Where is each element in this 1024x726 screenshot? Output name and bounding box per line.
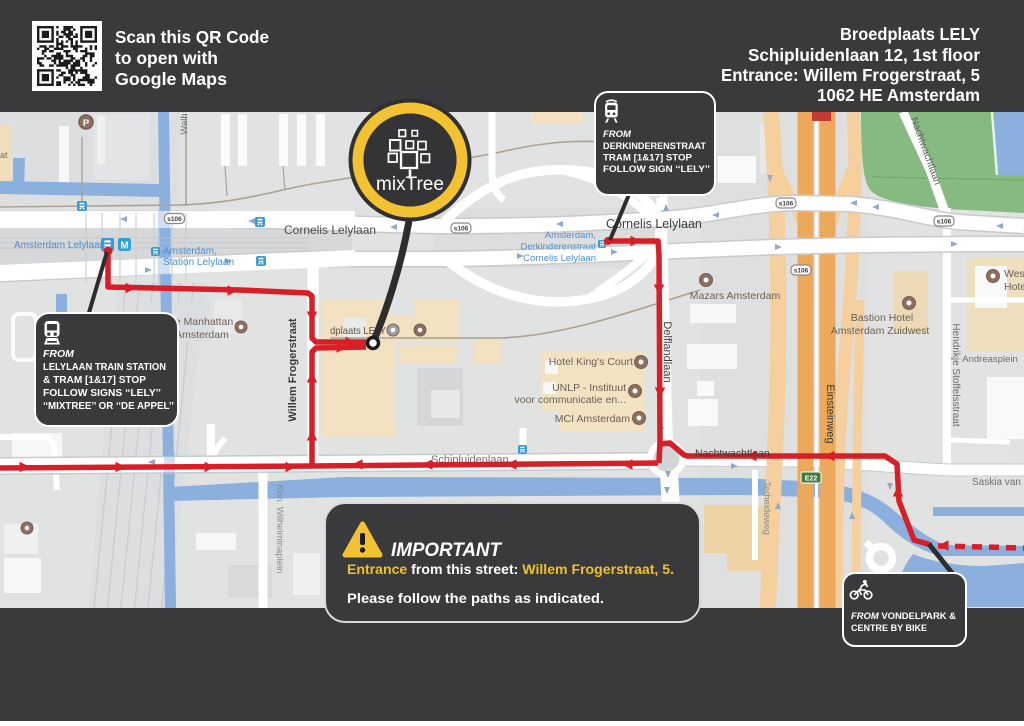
svg-text:TRAM [1&17] STOP: TRAM [1&17] STOP bbox=[603, 153, 693, 164]
svg-text:e Manhattan: e Manhattan bbox=[175, 316, 234, 328]
svg-text:s106: s106 bbox=[779, 201, 794, 208]
svg-text:WestCo: WestCo bbox=[1004, 268, 1024, 280]
svg-text:MCI Amsterdam: MCI Amsterdam bbox=[555, 413, 631, 425]
svg-text:voor communicatie en...: voor communicatie en... bbox=[515, 394, 626, 406]
svg-text:IMPORTANT: IMPORTANT bbox=[391, 540, 502, 561]
svg-text:Derkinderenstraat: Derkinderenstraat bbox=[520, 242, 596, 253]
svg-text:FOLLOW SIGNS ‘‘LELY’’: FOLLOW SIGNS ‘‘LELY’’ bbox=[43, 388, 161, 399]
svg-text:FROM: FROM bbox=[43, 348, 74, 360]
svg-text:Walh: Walh bbox=[179, 113, 190, 134]
svg-text:Terheideweg: Terheideweg bbox=[761, 481, 772, 535]
svg-text:Nachtwachtlaan: Nachtwachtlaan bbox=[695, 448, 770, 460]
svg-text:Einsteinweg: Einsteinweg bbox=[824, 384, 836, 443]
svg-text:Amsterdam Zuidwest: Amsterdam Zuidwest bbox=[831, 325, 930, 337]
svg-text:E22: E22 bbox=[805, 476, 818, 483]
svg-text:Amsterdam Lelylaan: Amsterdam Lelylaan bbox=[14, 240, 105, 251]
svg-text:& TRAM [1&17] STOP: & TRAM [1&17] STOP bbox=[43, 375, 146, 386]
svg-text:Bastion Hotel: Bastion Hotel bbox=[851, 312, 913, 324]
svg-text:LELYLAAN TRAIN STATION: LELYLAAN TRAIN STATION bbox=[43, 362, 166, 373]
svg-text:Mazars Amsterdam: Mazars Amsterdam bbox=[690, 290, 781, 302]
svg-text:Broedplaats LELY: Broedplaats LELY bbox=[840, 24, 980, 44]
svg-text:Willem Frogerstraat: Willem Frogerstraat bbox=[287, 318, 299, 422]
svg-text:DERKINDERENSTRAAT: DERKINDERENSTRAAT bbox=[603, 141, 706, 152]
svg-text:Scan this QR Code: Scan this QR Code bbox=[115, 27, 269, 47]
svg-text:Station Lelylaan: Station Lelylaan bbox=[163, 257, 234, 268]
svg-text:to open with: to open with bbox=[115, 48, 218, 68]
svg-text:Google Maps: Google Maps bbox=[115, 69, 227, 89]
svg-text:Amsterdam,: Amsterdam, bbox=[163, 246, 217, 257]
svg-text:Cornelis Lelylaan: Cornelis Lelylaan bbox=[284, 223, 376, 237]
svg-text:Please follow the paths as ind: Please follow the paths as indicated. bbox=[347, 590, 604, 606]
svg-text:Hotel A: Hotel A bbox=[1004, 281, 1024, 293]
svg-text:Hendrikje Stoffelsstraat: Hendrikje Stoffelsstraat bbox=[950, 323, 961, 426]
svg-text:M: M bbox=[120, 241, 128, 252]
svg-text:Amsterdam,: Amsterdam, bbox=[545, 230, 596, 241]
svg-text:‘‘MIXTREE’’ OR ‘‘DE APPEL’’: ‘‘MIXTREE’’ OR ‘‘DE APPEL’’ bbox=[43, 401, 174, 412]
svg-text:FOLLOW SIGN ‘‘LELY’’: FOLLOW SIGN ‘‘LELY’’ bbox=[603, 164, 710, 175]
svg-text:Hotel King's Court: Hotel King's Court bbox=[549, 356, 633, 368]
svg-text:Kon. Wilhelminaplein: Kon. Wilhelminaplein bbox=[274, 485, 285, 574]
svg-text:Entrance from this street: Wil: Entrance from this street: Willem Froger… bbox=[347, 561, 674, 577]
svg-text:Schipluidenlaan 12, 1st floor: Schipluidenlaan 12, 1st floor bbox=[748, 45, 980, 65]
svg-text:Entrance: Willem Frogerstraat,: Entrance: Willem Frogerstraat, 5 bbox=[721, 65, 980, 85]
svg-text:UNLP - Instituut: UNLP - Instituut bbox=[552, 382, 626, 394]
svg-text:Andreasplein: Andreasplein bbox=[962, 354, 1017, 365]
svg-text:Delflandlaan: Delflandlaan bbox=[661, 321, 673, 382]
svg-text:FROM VONDELPARK &: FROM VONDELPARK & bbox=[851, 611, 956, 622]
svg-text:FROM: FROM bbox=[603, 129, 632, 140]
svg-text:s106: s106 bbox=[937, 219, 952, 226]
svg-text:s106: s106 bbox=[454, 226, 469, 233]
svg-text:1062 HE Amsterdam: 1062 HE Amsterdam bbox=[817, 85, 980, 105]
svg-text:s106: s106 bbox=[167, 216, 182, 223]
svg-text:CENTRE BY BIKE: CENTRE BY BIKE bbox=[851, 623, 927, 634]
svg-text:Cornelis Lelylaan: Cornelis Lelylaan bbox=[523, 253, 596, 264]
svg-text:at: at bbox=[0, 150, 8, 160]
svg-text:P: P bbox=[83, 118, 90, 129]
svg-text:s106: s106 bbox=[794, 268, 809, 275]
svg-text:Saskia van Ui: Saskia van Ui bbox=[972, 477, 1024, 488]
svg-text:Amsterdam: Amsterdam bbox=[175, 329, 229, 341]
